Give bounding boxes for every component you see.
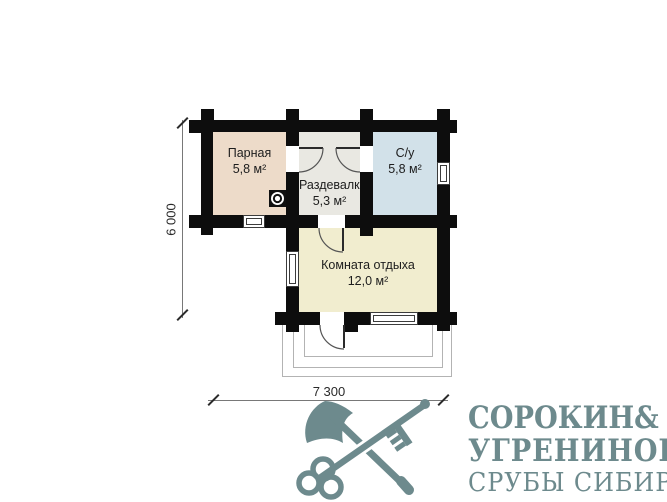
door-opening-parnaya (286, 146, 299, 172)
window-su (437, 162, 450, 185)
room-razdevalka-label: Раздевалка 5,3 м² (299, 177, 360, 209)
logo-ampersand: & (634, 403, 659, 434)
window-frame (289, 254, 296, 284)
room-su: С/у 5,8 м² (373, 132, 437, 215)
door-opening-komnata (318, 215, 345, 228)
log-end (450, 120, 457, 133)
room-su-label: С/у 5,8 м² (373, 145, 437, 177)
room-parnaya: Парная 5,8 м² (213, 132, 286, 215)
window-komnata-bottom (370, 312, 418, 325)
axe-and-key-logo-icon (293, 393, 465, 502)
log-end (275, 312, 286, 325)
log-end (360, 109, 373, 120)
log-end (360, 228, 373, 236)
wall-bottom (286, 312, 450, 325)
log-end (201, 109, 214, 120)
window-frame (246, 218, 262, 225)
dim-height-line (182, 120, 183, 318)
window-parnaya (243, 215, 265, 228)
room-razdevalka: Раздевалка 5,3 м² (299, 132, 360, 215)
log-end (345, 325, 358, 332)
wall-interior-1 (286, 132, 299, 215)
dim-height-label: 6 000 (164, 190, 179, 250)
door-opening-su (360, 146, 373, 172)
logo-company-line2: УГРЕНИНОВ (468, 436, 667, 467)
log-end (450, 215, 457, 228)
room-parnaya-label: Парная 5,8 м² (213, 145, 286, 177)
logo-company-line1: СОРОКИН & (468, 403, 640, 434)
room-parnaya-name: Парная (213, 145, 286, 161)
log-end (437, 325, 450, 331)
log-end (189, 215, 201, 228)
log-end (286, 109, 299, 120)
room-komnata-area: 12,0 м² (299, 273, 437, 289)
wall-top (201, 120, 450, 132)
log-end (437, 109, 450, 120)
window-frame (373, 315, 415, 322)
room-razdevalka-area: 5,3 м² (299, 193, 360, 209)
logo-text: СОРОКИН & УГРЕНИНОВ СРУБЫ СИБИРИ (468, 403, 664, 434)
room-parnaya-area: 5,8 м² (213, 161, 286, 177)
room-komnata-label: Комната отдыха 12,0 м² (299, 257, 437, 289)
room-komnata-name: Комната отдыха (299, 257, 437, 273)
log-end (189, 120, 201, 133)
room-su-area: 5,8 м² (373, 161, 437, 177)
door-opening-entrance (320, 312, 344, 325)
window-frame (440, 165, 447, 182)
window-komnata-left (286, 251, 299, 287)
logo-tagline: СРУБЫ СИБИРИ (468, 470, 667, 496)
logo-name-sorokin: СОРОКИН (468, 403, 634, 434)
room-razdevalka-name: Раздевалка (299, 177, 360, 193)
log-end (201, 228, 213, 235)
floorplan-canvas: Парная 5,8 м² Раздевалка 5,3 м² С/у 5,8 … (0, 0, 667, 502)
wall-interior-2 (360, 132, 373, 215)
room-su-name: С/у (373, 145, 437, 161)
log-end (450, 312, 457, 325)
room-komnata-otdyha: Комната отдыха 12,0 м² (299, 228, 437, 312)
log-end (286, 325, 299, 332)
wall-left (201, 120, 213, 228)
